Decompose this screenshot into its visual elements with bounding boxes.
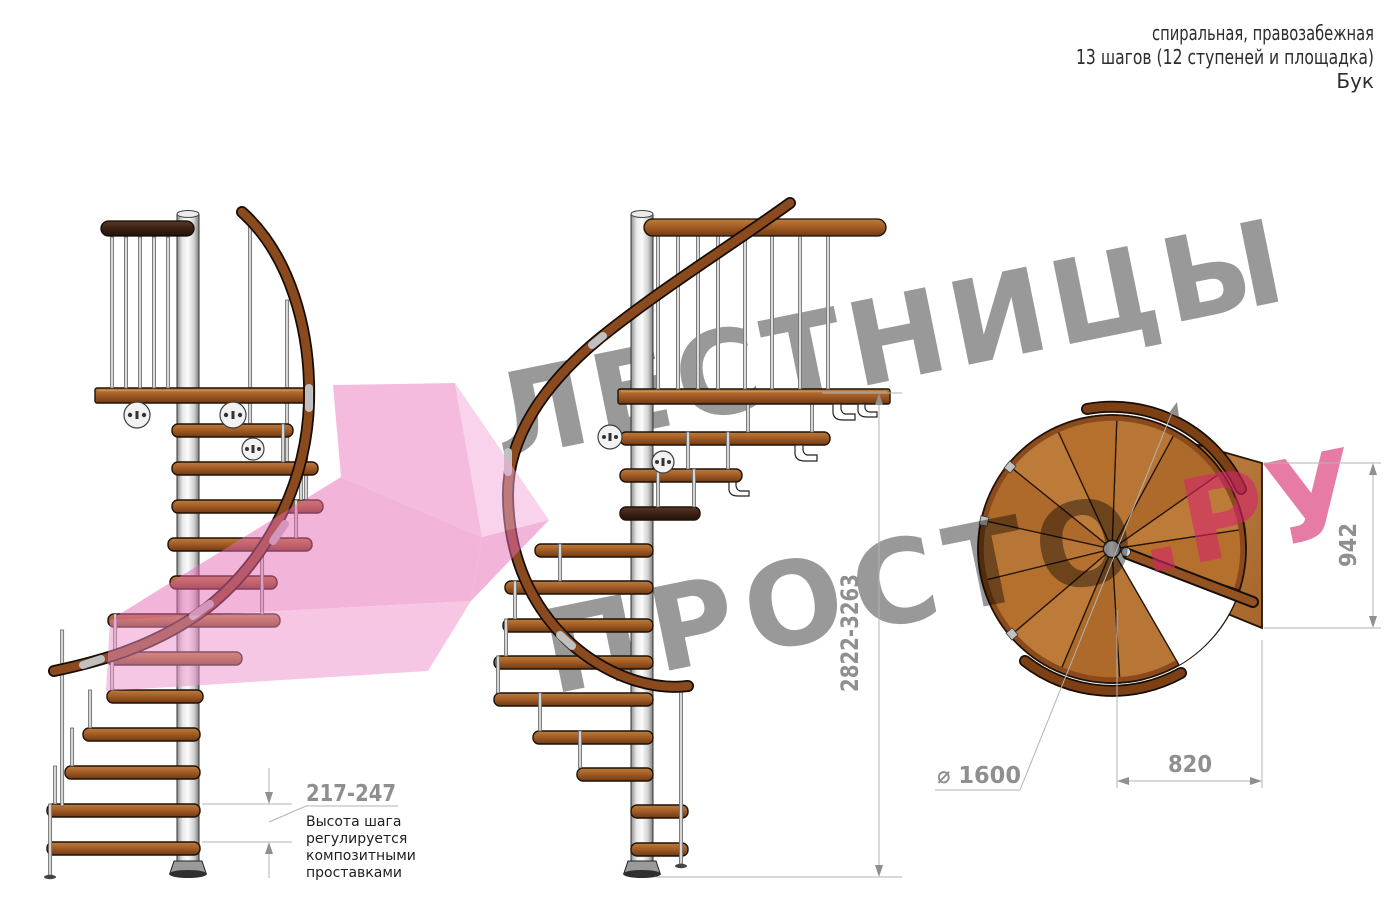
left-pole-base xyxy=(169,861,207,878)
front-pole-base xyxy=(623,861,661,878)
step-note-line-3: композитными xyxy=(306,848,416,864)
spiral-staircase-drawing: ЛЕСТНИЦЫ ПРОСТО .РУ xyxy=(0,0,1400,917)
step-pitch-label: 217-247 xyxy=(306,781,396,807)
dimension-step-pitch: 217-247 Высота шага регулируется компози… xyxy=(202,768,416,881)
landing-width-label: 820 xyxy=(1168,752,1212,778)
left-top-rail xyxy=(101,221,194,236)
landing-depth-label: 942 xyxy=(1336,523,1362,567)
step-note-line-4: проставками xyxy=(306,865,402,881)
total-height-label: 2822-3263 xyxy=(836,574,864,692)
header-material-line: Бук xyxy=(1336,69,1374,93)
watermark-text: ЛЕСТНИЦЫ ПРОСТО .РУ xyxy=(479,189,1370,723)
left-platform-balusters xyxy=(110,237,169,388)
technical-drawing-page: ЛЕСТНИЦЫ ПРОСТО .РУ xyxy=(0,0,1400,917)
step-pitch-note: Высота шага регулируется композитными пр… xyxy=(306,814,416,881)
header-text: спиральная, правозабежная 13 шагов (12 с… xyxy=(1076,21,1374,93)
step-note-line-2: регулируется xyxy=(306,831,407,847)
header-type-line: спиральная, правозабежная xyxy=(1152,21,1374,45)
diameter-label: ⌀ 1600 xyxy=(937,763,1021,789)
step-note-line-1: Высота шага xyxy=(306,814,401,830)
header-steps-line: 13 шагов (12 ступеней и площадка) xyxy=(1076,45,1374,69)
